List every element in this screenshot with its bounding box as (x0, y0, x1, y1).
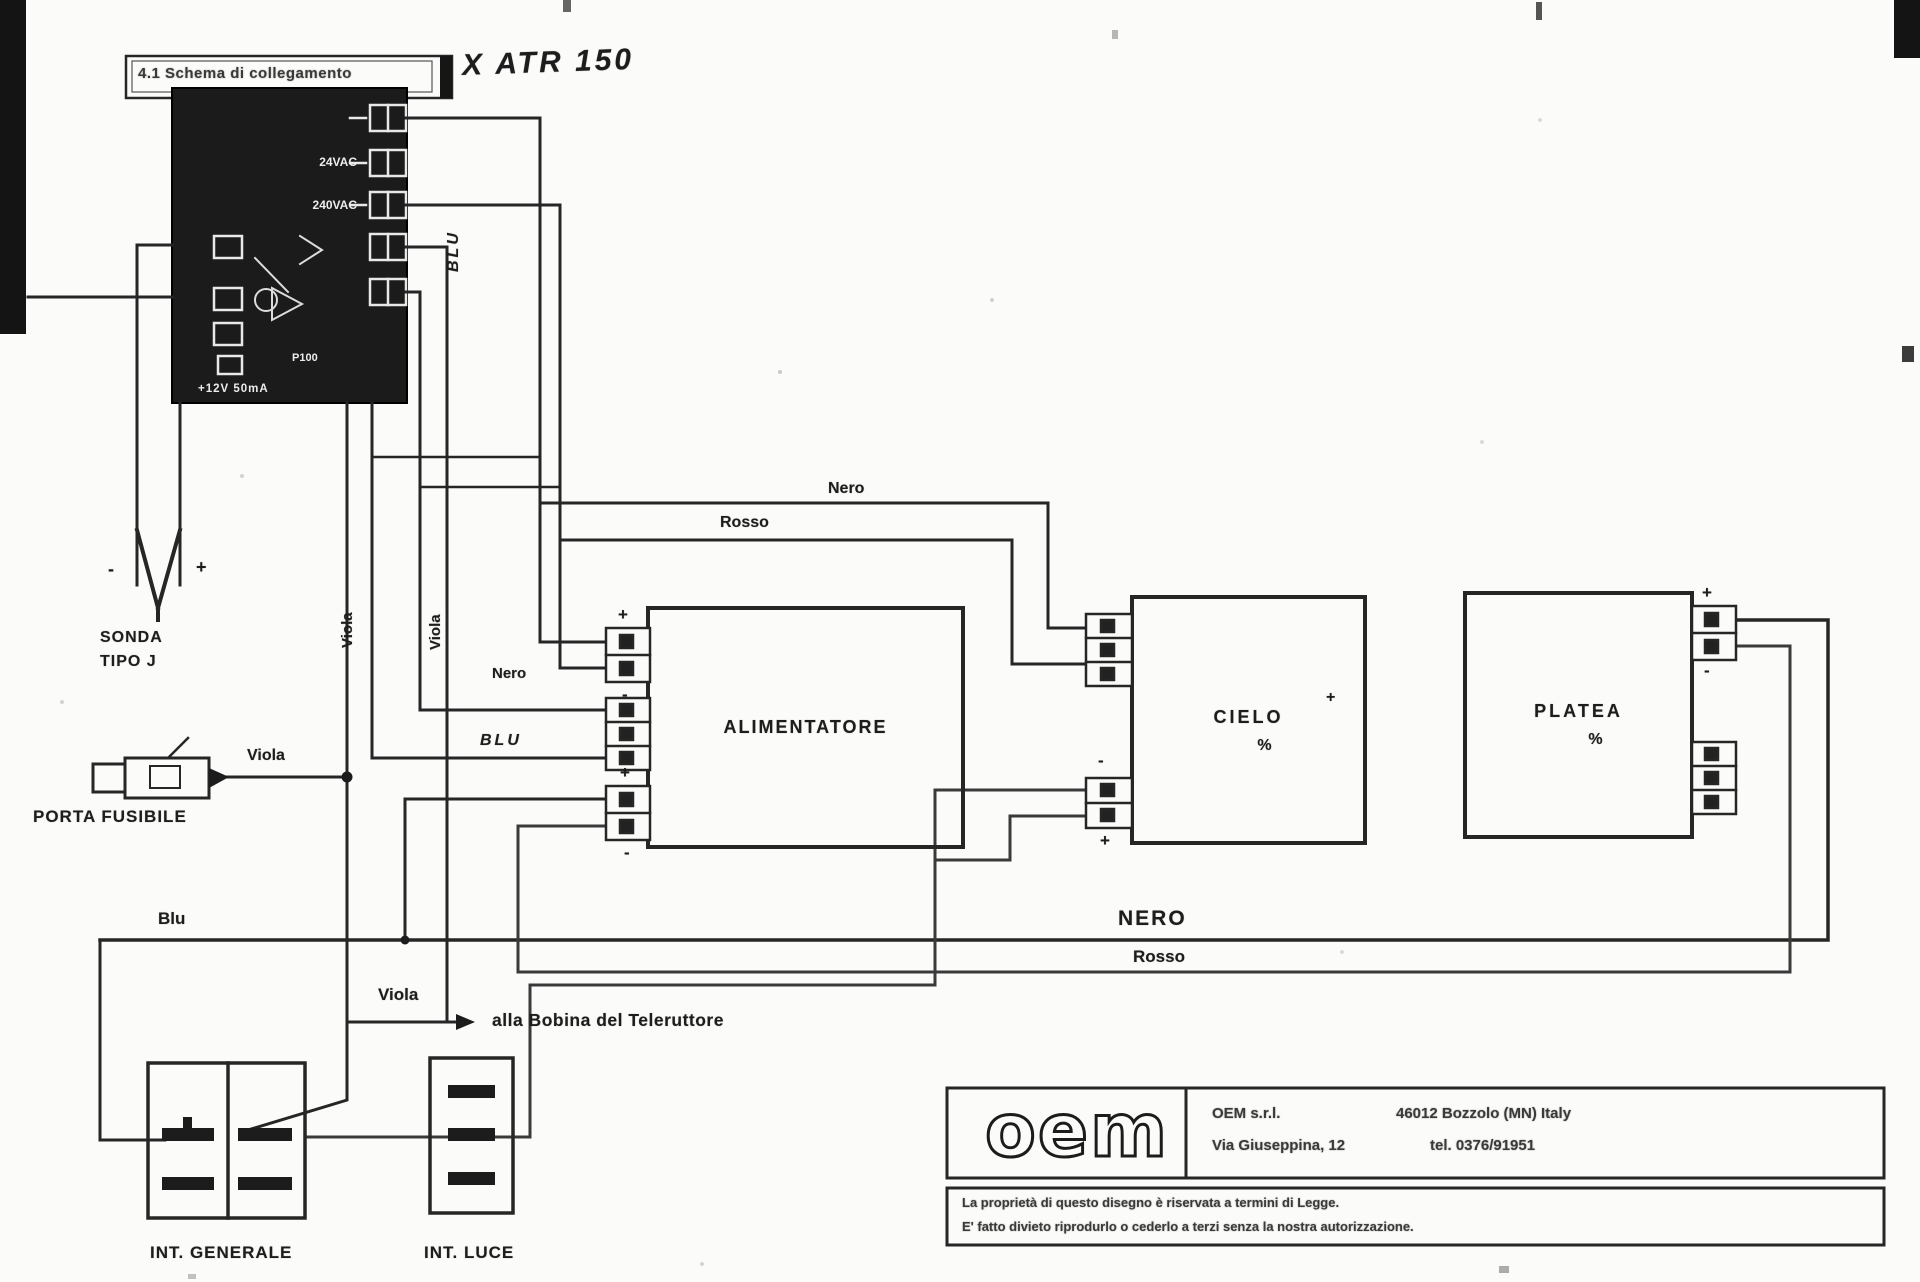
wire-t1-nero (406, 118, 606, 642)
nero-bottom-label: NERO (1118, 908, 1187, 929)
sonda-label-line1: SONDA (100, 630, 163, 646)
wire-nero-left (405, 799, 606, 940)
alim-top-block (606, 628, 650, 682)
controller-supply-label: +12V 50mA (198, 384, 269, 396)
cielo-mark: % (1148, 738, 1381, 754)
oem-legal-line1: La proprietà di questo disegno è riserva… (962, 1196, 1339, 1209)
rosso-bottom-label: Rosso (1133, 948, 1185, 965)
cielo-bottom-block (1086, 778, 1132, 828)
alim-top-minus: - (622, 686, 628, 703)
alim-top-plus: + (618, 606, 628, 623)
nero-alim-label: Nero (492, 666, 526, 681)
oem-logo: oem (985, 1088, 1169, 1174)
cielo-plus-mark: + (1326, 690, 1335, 706)
wire-switch-cielo (305, 790, 1086, 1137)
oem-legal-line2: E' fatto divieto riprodurlo o cederlo a … (962, 1220, 1414, 1233)
platea-label: PLATEA (1465, 702, 1692, 720)
oem-address-left: Via Giuseppina, 12 (1212, 1138, 1345, 1153)
int-generale-symbol (148, 1063, 305, 1218)
controller-internal-label: P100 (292, 353, 318, 364)
viola-vertical-label-2: Viola (428, 614, 443, 650)
viola-vertical-label-1: Viola (340, 612, 355, 648)
cielo-top-block (1086, 614, 1132, 686)
blu-alim-label: BLU (480, 733, 522, 749)
model-annotation: X ATR 150 (462, 45, 635, 81)
platea-minus: - (1704, 662, 1710, 679)
bobina-note: alla Bobina del Teleruttore (492, 1012, 724, 1030)
platea-top-block (1692, 606, 1736, 660)
oem-address-right: 46012 Bozzolo (MN) Italy (1396, 1106, 1571, 1121)
fuse-holder-symbol (93, 738, 229, 798)
sonda-tip (137, 530, 180, 620)
oem-company: OEM s.r.l. (1212, 1106, 1280, 1121)
controller-24vac-label: 24VAC (262, 156, 357, 168)
controller-module (172, 88, 407, 403)
sonda-plus-mark: + (196, 558, 207, 576)
rosso-top-label: Rosso (720, 515, 769, 531)
alim-mid-block (606, 698, 650, 770)
int-generale-label: INT. GENERALE (150, 1244, 292, 1261)
int-luce-label: INT. LUCE (424, 1244, 514, 1261)
oem-phone: tel. 0376/91951 (1430, 1138, 1535, 1153)
wire-viola-main (248, 403, 347, 1130)
platea-bottom-block (1692, 742, 1736, 814)
wiring-diagram-sheet: oem 4.1 Schema di collegamento X ATR 150… (0, 0, 1920, 1282)
wire-blu-left (100, 940, 165, 1140)
wire-t3-rosso (406, 205, 606, 668)
fuse-wire-label: Viola (247, 748, 285, 764)
sonda-label-line2: TIPO J (100, 654, 157, 670)
controller-240vac-label: 240VAC (252, 199, 357, 211)
fuse-label: PORTA FUSIBILE (33, 808, 187, 825)
section-title: 4.1 Schema di collegamento (138, 66, 352, 81)
cielo-label: CIELO (1132, 708, 1365, 726)
wiring-diagram-drawing: oem (0, 0, 1920, 1282)
cielo-bottom-plus: + (1100, 832, 1110, 849)
alim-bottom-minus: - (624, 844, 630, 861)
sonda-minus-mark: - (108, 560, 114, 578)
alimentatore-label: ALIMENTATORE (648, 718, 963, 736)
alim-bottom-plus: + (620, 764, 630, 781)
platea-mark: % (1482, 732, 1709, 748)
blu-bottom-label: Blu (158, 910, 185, 927)
nero-top-label: Nero (828, 481, 864, 497)
wire-cielo-lower2 (935, 816, 1086, 860)
viola-bobina-label: Viola (378, 986, 418, 1003)
blu-handwritten-label: BLU (446, 230, 462, 272)
platea-plus: + (1702, 584, 1712, 601)
cielo-bottom-minus: - (1098, 752, 1104, 769)
alim-bottom-block (606, 786, 650, 840)
